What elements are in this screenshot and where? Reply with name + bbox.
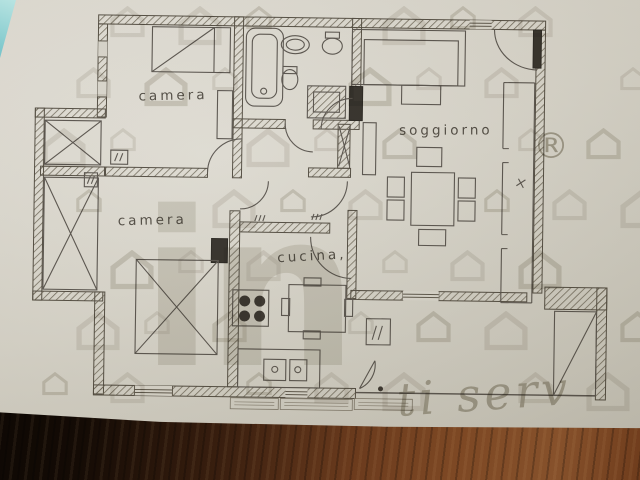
slogan-watermark-text: ti serv [395, 361, 573, 427]
photo-frame: camera camera soggiorno cucina, in ® ti … [0, 0, 640, 480]
sofa-icon [352, 29, 466, 86]
washbasin-icon [281, 35, 309, 53]
bathtub-icon [245, 28, 283, 107]
room-label-soggiorno: soggiorno [399, 122, 493, 138]
logo-watermark-text: in [140, 165, 351, 416]
dining-table-icon [387, 172, 476, 246]
registered-mark-icon: ® [533, 126, 569, 167]
shower-block [307, 86, 345, 119]
side-table-icon [417, 147, 442, 166]
balcony-icon [43, 120, 101, 290]
wc-icon [282, 66, 298, 89]
tv-unit-icon [362, 123, 376, 175]
floor-plan-paper: camera camera soggiorno cucina, in ® ti … [0, 0, 640, 480]
bidet-icon [322, 32, 342, 54]
floor-plan-drawing: camera camera soggiorno cucina, in ® ti … [0, 0, 640, 480]
wardrobe-icon [217, 91, 233, 139]
